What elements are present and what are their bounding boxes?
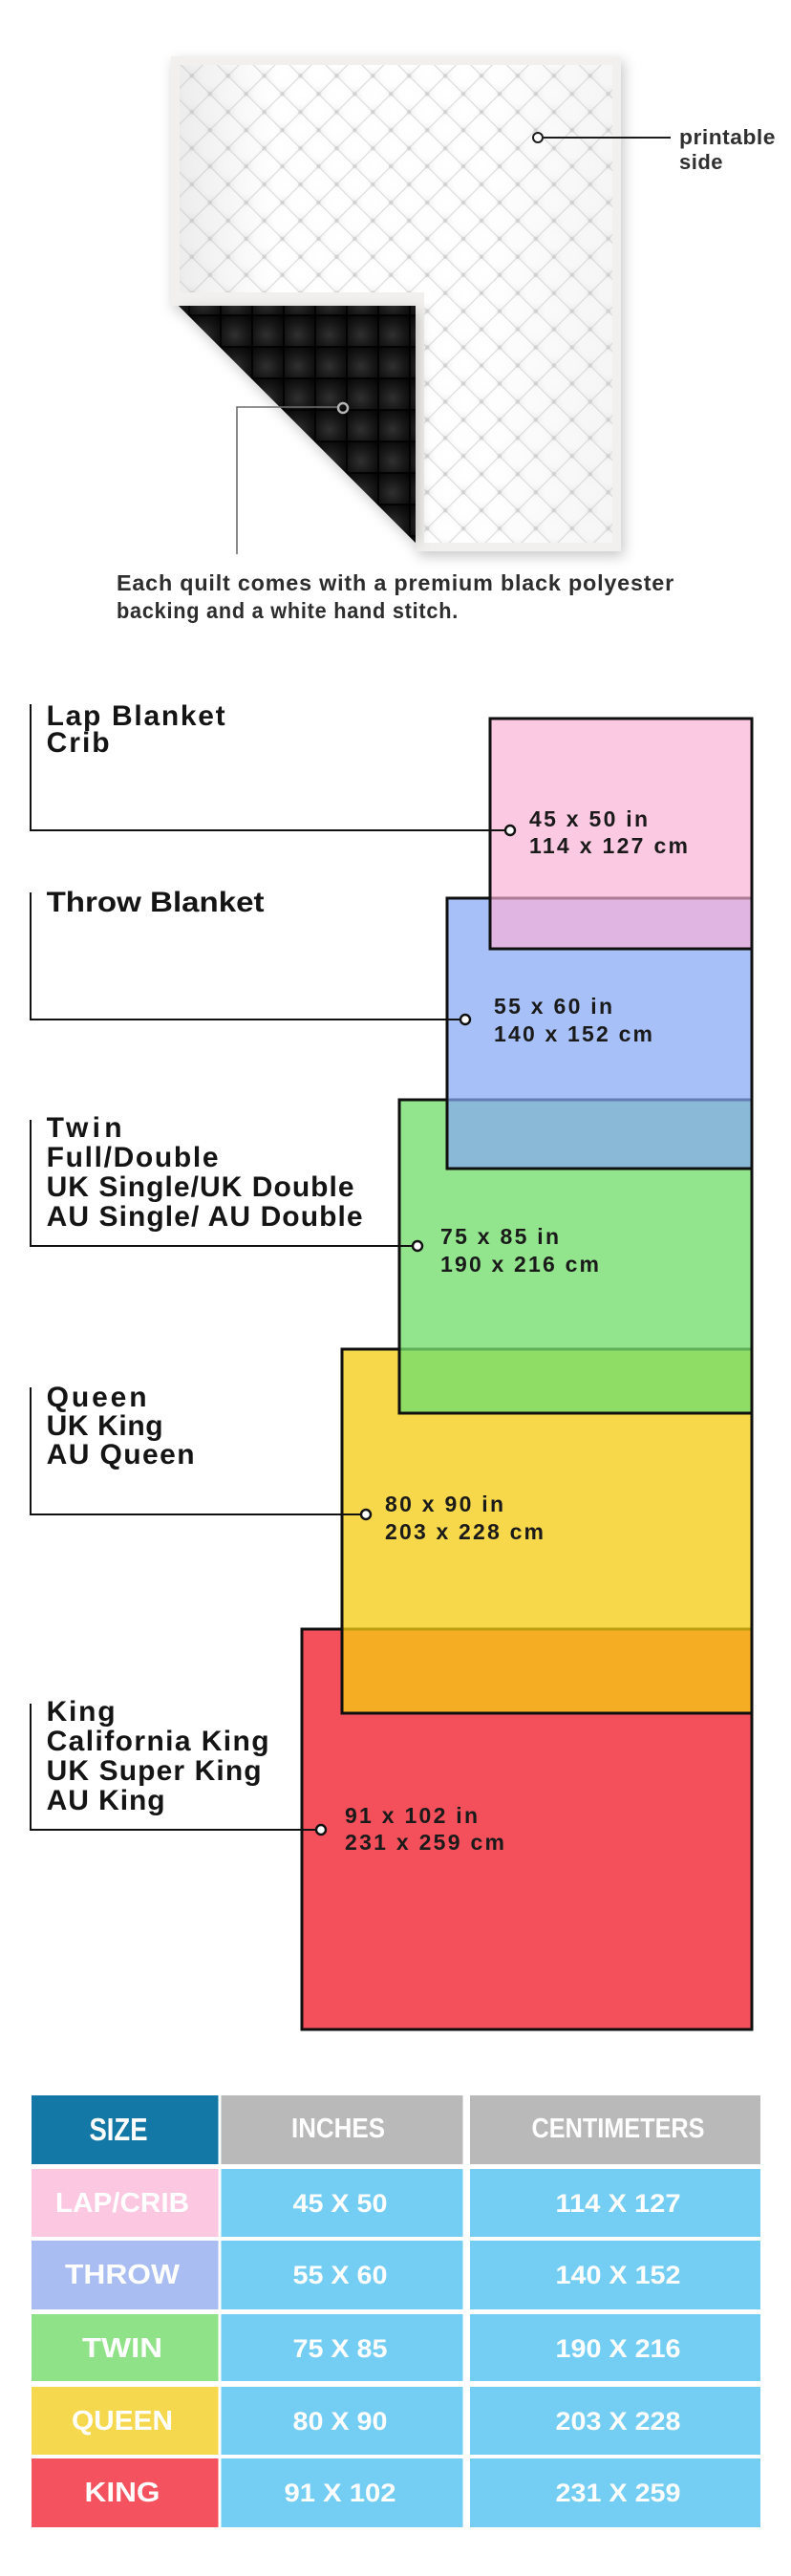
svg-text:side: side <box>679 150 723 174</box>
svg-text:UK Super King: UK Super King <box>47 1755 262 1787</box>
svg-text:Crib: Crib <box>47 727 110 759</box>
svg-text:Throw Blanket: Throw Blanket <box>47 887 265 918</box>
svg-text:231 x 259 cm: 231 x 259 cm <box>345 1830 506 1855</box>
svg-text:King: King <box>47 1696 116 1728</box>
svg-text:printable: printable <box>679 125 776 149</box>
svg-text:45 x 50 in: 45 x 50 in <box>529 806 650 831</box>
svg-text:190 x 216 cm: 190 x 216 cm <box>440 1252 601 1277</box>
svg-text:TWIN: TWIN <box>82 2333 162 2364</box>
svg-text:190 X 216: 190 X 216 <box>556 2334 681 2363</box>
svg-text:91 x 102 in: 91 x 102 in <box>345 1803 480 1828</box>
svg-text:Twin: Twin <box>47 1112 122 1144</box>
svg-text:UK Single/UK Double: UK Single/UK Double <box>47 1171 354 1203</box>
svg-text:203 X 228: 203 X 228 <box>556 2407 681 2436</box>
svg-text:80 x 90 in: 80 x 90 in <box>385 1492 505 1516</box>
svg-text:75 x 85 in: 75 x 85 in <box>440 1224 561 1249</box>
svg-text:114 X 127: 114 X 127 <box>556 2189 681 2218</box>
svg-text:QUEEN: QUEEN <box>72 2406 173 2436</box>
svg-text:Each quilt comes with a premiu: Each quilt comes with a premium black po… <box>117 570 674 595</box>
svg-text:AU Queen: AU Queen <box>47 1439 195 1470</box>
svg-text:LAP/CRIB: LAP/CRIB <box>55 2188 189 2219</box>
svg-text:California King: California King <box>47 1726 269 1757</box>
svg-text:Queen: Queen <box>47 1382 147 1413</box>
svg-text:45 X 50: 45 X 50 <box>293 2189 388 2218</box>
svg-text:80 X 90: 80 X 90 <box>293 2407 388 2436</box>
svg-text:55 X 60: 55 X 60 <box>293 2261 388 2289</box>
svg-text:140 X 152: 140 X 152 <box>556 2261 681 2289</box>
svg-text:AU King: AU King <box>47 1785 165 1816</box>
svg-text:KING: KING <box>85 2478 160 2508</box>
svg-text:CENTIMETERS: CENTIMETERS <box>532 2114 705 2144</box>
svg-text:backing and a white hand stitc: backing and a white hand stitch. <box>117 598 459 623</box>
svg-text:91 X 102: 91 X 102 <box>285 2479 396 2507</box>
svg-text:INCHES: INCHES <box>291 2114 385 2144</box>
svg-text:140 x 152 cm: 140 x 152 cm <box>494 1021 654 1046</box>
svg-text:SIZE: SIZE <box>90 2112 148 2147</box>
svg-text:231 X 259: 231 X 259 <box>556 2479 681 2507</box>
svg-text:55 x 60 in: 55 x 60 in <box>494 994 614 1019</box>
svg-text:114 x 127 cm: 114 x 127 cm <box>529 833 690 858</box>
svg-text:Full/Double: Full/Double <box>47 1142 219 1173</box>
svg-text:THROW: THROW <box>65 2260 181 2290</box>
svg-text:AU Single/ AU Double: AU Single/ AU Double <box>47 1201 363 1233</box>
svg-text:UK King: UK King <box>47 1410 163 1442</box>
svg-text:203 x 228 cm: 203 x 228 cm <box>385 1519 545 1544</box>
svg-text:75 X 85: 75 X 85 <box>293 2334 388 2363</box>
